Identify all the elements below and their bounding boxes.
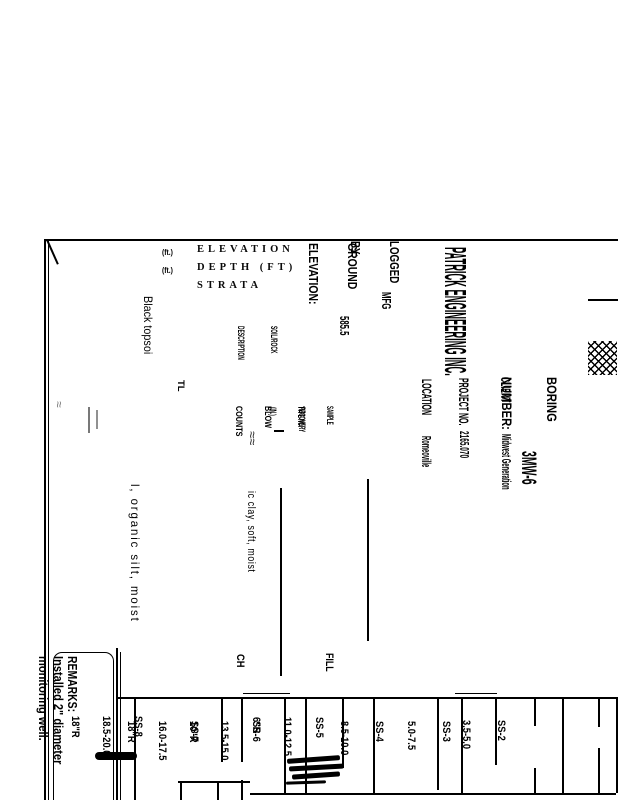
col-header-recovery-line1: RECOVERY	[297, 407, 307, 432]
col-header-strata-text: STRATA	[197, 280, 262, 291]
uscs-symbol-ch-text: CH	[234, 654, 246, 668]
stratum-note-tl-text: TL	[175, 380, 186, 392]
col-header-strata: STRATA	[197, 280, 262, 291]
ground-elevation-label-line2: ELEVATION:	[307, 243, 320, 304]
soil-description-2-text: l, organic silt, moist	[128, 484, 142, 623]
sample-id: SS-6	[251, 721, 262, 761]
ink-blot-1	[95, 752, 137, 760]
col-header-elevation-unit: (ft.)	[162, 247, 173, 257]
remarks-line-2: monitoring well.	[6, 656, 81, 741]
strata-hatch-swatch	[588, 341, 617, 375]
col-header-depth-unit: (ft.)	[162, 265, 173, 275]
scanned-boring-log-page: PATRICK ENGINEERING INC. BORING NUMBER: …	[0, 0, 618, 800]
col-header-elevation-unit-text: (ft.)	[162, 247, 173, 257]
handwritten-mark-1: ≈≈	[245, 431, 260, 445]
ink-blot-2a	[287, 755, 340, 764]
col-header-elevation: ELEVATION	[197, 244, 294, 255]
sample-id: SS-5	[314, 717, 325, 756]
col-header-elevation-text: ELEVATION	[197, 244, 294, 255]
grid-vline	[598, 699, 600, 727]
soil-description-3: ic clay, soft, moist	[221, 491, 281, 573]
uscs-symbol-ch: CH	[210, 654, 270, 668]
top-edge-tick-line	[588, 299, 618, 301]
sample-id: SS-8	[133, 716, 144, 756]
col-header-depth-text: DEPTH (FT)	[197, 262, 296, 273]
soil-description-1-text: Black topsoi	[141, 296, 155, 354]
sample-table-bottom-line-right	[250, 793, 616, 795]
col-header-depth: DEPTH (FT)	[197, 262, 296, 273]
grid-vline	[616, 697, 618, 793]
sample-table-top-skew-1	[243, 693, 290, 694]
handwritten-mark-3	[88, 407, 90, 433]
stratum-label-fill-text: FILL	[323, 653, 335, 672]
boring-number-label-line1: BORING	[544, 377, 559, 430]
col-header-soil-rock-line1: SOIL/ROCK	[268, 326, 279, 360]
grid-vline	[180, 781, 182, 800]
grid-vline	[217, 781, 219, 800]
location-label: LOCATION	[387, 379, 467, 415]
sample-depth: 11.0-12.5	[282, 717, 293, 756]
grid-vline	[534, 768, 536, 793]
col-header-soil-rock-description: SOIL/ROCK DESCRIPTION	[213, 326, 301, 360]
stratum-boundary-line-1	[367, 479, 369, 641]
sample-id: SS-2	[495, 720, 507, 749]
grid-vline	[598, 748, 600, 793]
col-header-sample-line1: SAMPLE	[325, 406, 335, 427]
grid-vline	[241, 780, 243, 800]
ground-elevation-label: GROUND ELEVATION:	[281, 243, 385, 304]
location-label-text: LOCATION	[419, 379, 435, 415]
location-value: Romeoville	[389, 436, 464, 467]
soil-description-1: Black topsoi	[113, 296, 183, 354]
col-header-blow-counts-line1: BLOW	[263, 406, 273, 436]
company-name-text: PATRICK ENGINEERING INC.	[437, 247, 473, 376]
sample-id: SS-4	[373, 721, 385, 755]
ground-elevation-value: 585.5	[307, 316, 382, 336]
soil-description-3-text: ic clay, soft, moist	[245, 491, 257, 573]
col-header-soil-rock-line2: DESCRIPTION	[235, 326, 246, 360]
sample-id: SS-7	[189, 721, 200, 761]
grid-vline	[562, 699, 564, 793]
location-value-text: Romeoville	[419, 436, 434, 467]
handwritten-mark-dash	[274, 430, 284, 432]
soil-description-2: l, organic silt, moist	[100, 484, 170, 623]
handwritten-mark-2: ≈	[52, 401, 66, 408]
sample-table-top-skew-2	[455, 693, 497, 694]
col-header-blow-counts-line2: COUNTS	[234, 406, 244, 436]
handwritten-mark-4	[96, 410, 98, 429]
sample-table-top-line	[118, 697, 618, 699]
stratum-note-tl: TL	[153, 380, 208, 392]
ground-elevation-value-text: 585.5	[337, 316, 352, 336]
ink-blot-2b	[289, 764, 344, 772]
remarks-line-2-text: monitoring well.	[36, 656, 51, 741]
grid-vline	[534, 699, 536, 726]
sample-table-bottom-line-left	[178, 781, 250, 783]
ground-elevation-label-line1: GROUND	[346, 243, 359, 304]
sample-depth: 13.5-15.0	[219, 721, 230, 761]
sample-id: SS-3	[440, 721, 452, 750]
ink-blot-2c	[292, 771, 340, 779]
stratum-label-fill: FILL	[299, 653, 359, 672]
logged-by-label-line1: LOGGED	[388, 241, 401, 283]
col-header-depth-unit-text: (ft.)	[162, 265, 173, 275]
